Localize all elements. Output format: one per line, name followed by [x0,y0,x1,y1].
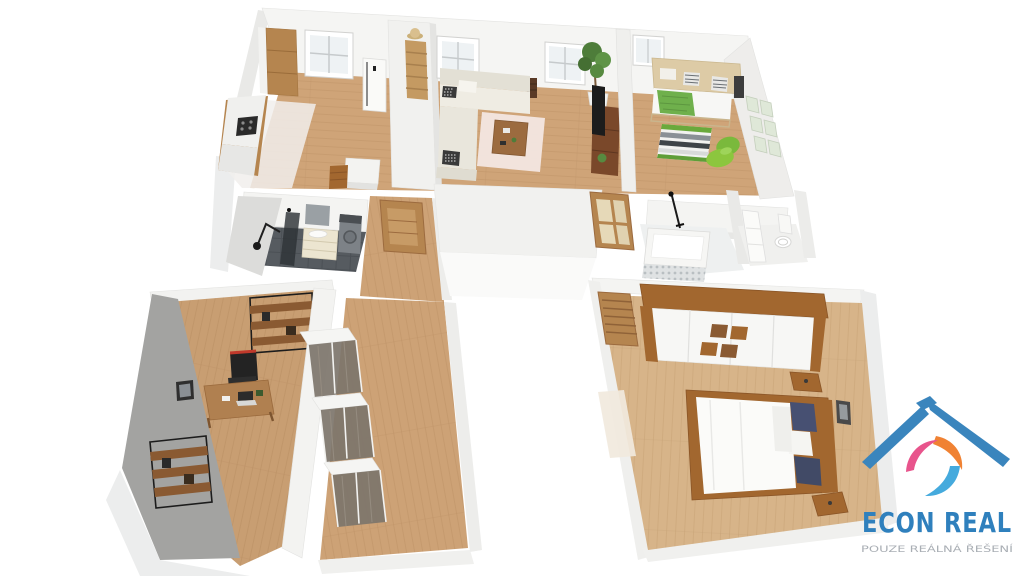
logo-swirl-icon [906,436,962,496]
coffee-table [492,120,528,156]
white-pillow [458,80,477,93]
mirror [305,204,330,226]
glass-door [590,192,634,250]
bedroom-wing [588,278,898,562]
pillow-navy [790,402,817,432]
double-bed [686,390,838,500]
vanity-sink [302,228,338,260]
closet-corridor [282,288,482,574]
wooden-door [380,200,426,254]
sliding-glass-wardrobe [312,393,374,462]
nightstand [790,372,822,392]
fridge [363,58,386,112]
nightstand [812,492,848,516]
striped-cushion [683,72,700,86]
wall-picture [836,400,851,425]
wardrobe [640,284,828,372]
bathtub [642,228,710,282]
plant-small [598,154,607,163]
tall-cabinet [258,27,298,96]
central-wall [434,184,602,300]
room-wc [738,190,816,266]
striped-rug [657,124,712,162]
wall-picture [176,380,194,401]
logo-name-text: ECON REAL [862,506,1012,539]
pillow-navy [794,456,823,486]
checkered-pillow [442,150,460,166]
dark-speaker [734,76,744,98]
striped-cushion [711,76,728,92]
bed [651,58,742,127]
window [305,30,353,79]
tv [592,85,605,136]
floorplan-render: ECON REAL POUZE REÁLNÁ ŘEŠENÍ [0,0,1024,576]
logo-tagline-text: POUZE REÁLNÁ ŘEŠENÍ [861,543,1013,555]
stove [236,116,258,136]
checkered-pillow [442,86,457,98]
floorplan-svg: ECON REAL POUZE REÁLNÁ ŘEŠENÍ [0,0,1024,576]
pillow-white [772,406,792,452]
washing-machine [338,214,362,254]
